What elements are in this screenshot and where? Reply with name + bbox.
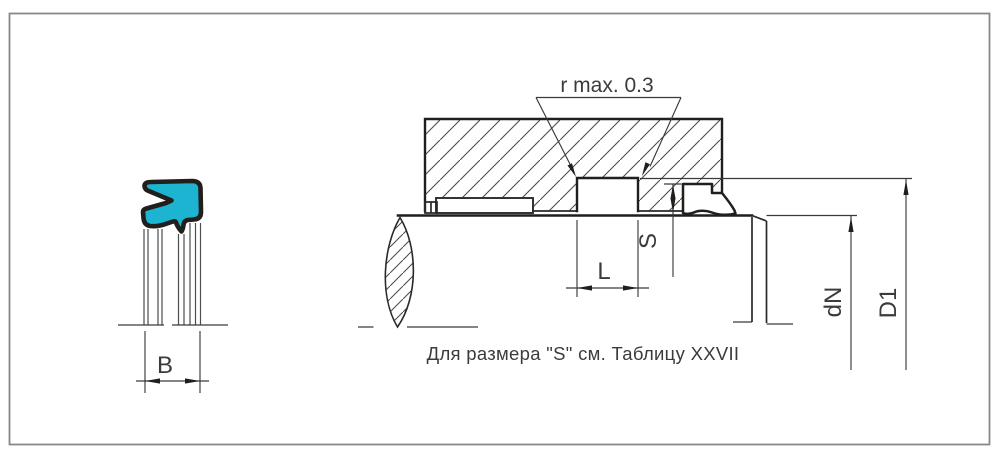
seal-profile [143,181,201,232]
seal-drawing-svg: B r max. [0,0,1000,457]
shaft-chamfer [752,216,767,222]
dim-b-arrow-right [185,378,200,383]
dim-l-arrow-right [623,285,638,290]
dim-d1-label: D1 [875,288,902,319]
r-annotation-label: r max. 0.3 [560,74,653,97]
dim-dn-arrow [848,217,853,232]
dim-d1-arrow [903,180,908,195]
installed-wiper-seal [683,184,736,215]
projection-lines [144,223,201,325]
seal-groove [577,178,638,211]
caption: Для размера "S" см. Таблицу XXVII [427,343,740,364]
guide-bushing [436,198,533,213]
dim-s-label: S [635,233,662,249]
shaft [358,216,793,328]
dim-l-label: L [597,258,610,285]
dim-b-arrow-left [145,378,160,383]
seal-cross-section-view: B [118,181,228,393]
shaft-end-face [752,217,767,323]
shaft-break-lens [385,218,413,328]
installation-view: r max. 0.3 L S dN [358,74,912,370]
dim-l-arrow-left [577,285,592,290]
dimension-l: L [566,220,649,297]
drawing-canvas: B r max. [0,0,1000,457]
shaft-cut-lines [733,322,793,324]
dim-dn-label: dN [820,287,847,318]
dimension-dn: dN [767,216,858,371]
dimension-b: B [136,331,209,393]
dim-b-label: B [157,352,173,379]
